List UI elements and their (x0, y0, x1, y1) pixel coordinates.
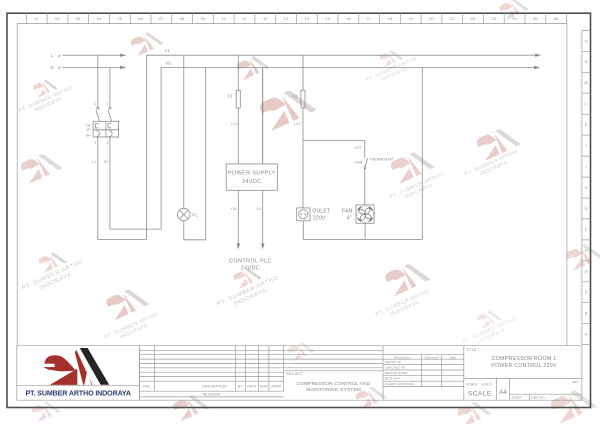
svg-text:18: 18 (388, 17, 393, 21)
svg-text:07: 07 (159, 17, 164, 21)
svg-text:N: N (51, 65, 55, 70)
svg-text:M: M (585, 81, 588, 85)
svg-text:SHEET: SHEET (511, 395, 522, 399)
svg-text:REVISION: REVISION (203, 392, 221, 396)
svg-text:K: K (585, 123, 588, 127)
svg-text:23: 23 (492, 17, 497, 21)
svg-text:DWG NO :: DWG NO : (531, 395, 546, 399)
svg-text:24VDC: 24VDC (242, 179, 261, 185)
svg-text:CHECKED BY: CHECKED BY (385, 366, 407, 370)
svg-text:PL: PL (192, 213, 198, 218)
svg-text:220V: 220V (313, 215, 326, 221)
svg-text:U.N.O.: U.N.O. (482, 383, 493, 387)
svg-text:L1: L1 (165, 48, 171, 53)
svg-text:C: C (585, 291, 588, 295)
svg-text:3: 3 (106, 102, 108, 106)
svg-text:E: E (585, 249, 588, 253)
svg-text:L: L (51, 53, 54, 58)
svg-text:25: 25 (533, 17, 538, 21)
svg-text:20: 20 (429, 17, 434, 21)
svg-text:H: H (585, 186, 588, 190)
svg-text:1P: 1P (86, 128, 91, 132)
svg-text:ø: ø (58, 53, 61, 58)
svg-text:11: 11 (242, 17, 246, 21)
svg-text:MONITORING SYSTEM: MONITORING SYSTEM (306, 387, 361, 393)
svg-text:COMPRESSOR ROOM 1: COMPRESSOR ROOM 1 (492, 356, 557, 362)
svg-text:L: L (585, 102, 587, 106)
svg-text:F: F (585, 228, 588, 232)
svg-text:05: 05 (117, 17, 122, 21)
svg-text:F2: F2 (292, 94, 298, 99)
svg-text:06: 06 (138, 17, 143, 21)
svg-text:15: 15 (325, 17, 330, 21)
svg-text:ø: ø (58, 65, 61, 70)
svg-text:03: 03 (76, 17, 81, 21)
svg-text:26: 26 (554, 17, 559, 21)
svg-text:02: 02 (55, 17, 60, 21)
svg-text:6A: 6A (86, 133, 91, 137)
svg-text:4: 4 (107, 141, 109, 145)
svg-text:SCALE: SCALE (468, 391, 492, 398)
svg-text:DESCRIPTION: DESCRIPTION (202, 385, 227, 389)
svg-text:COMPRESSOR CONTROL AND: COMPRESSOR CONTROL AND (297, 381, 371, 387)
svg-text:N: N (585, 60, 588, 64)
svg-text:Description: Description (394, 355, 411, 359)
svg-text:A4: A4 (499, 389, 507, 396)
svg-text:DRAWN BY: DRAWN BY (385, 360, 403, 364)
svg-text:LC3: LC3 (355, 146, 362, 150)
svg-text:THERMOSTAT: THERMOSTAT (370, 158, 394, 162)
svg-text:21: 21 (450, 17, 455, 21)
svg-text:22: 22 (471, 17, 476, 21)
svg-text:DATE: DATE (247, 385, 257, 389)
svg-text:09: 09 (201, 17, 206, 21)
svg-text:14: 14 (304, 17, 309, 21)
svg-text:04: 04 (97, 17, 102, 21)
svg-text:+24: +24 (230, 207, 236, 211)
svg-text:CONTROL PLC: CONTROL PLC (229, 258, 272, 264)
svg-text:13: 13 (284, 17, 289, 21)
svg-text:POWER CONTROL 220V: POWER CONTROL 220V (491, 363, 557, 369)
svg-text:LC1: LC1 (231, 122, 238, 126)
svg-text:24VDC: 24VDC (241, 266, 260, 272)
svg-text:F1: F1 (228, 94, 234, 99)
svg-text:TITLE: TITLE (466, 348, 477, 352)
svg-text:2: 2 (95, 141, 97, 145)
svg-text:D: D (585, 270, 588, 274)
svg-text:4": 4" (347, 216, 352, 222)
svg-text:Date: Date (449, 355, 456, 359)
svg-text:PT. SUMBER ARTHO INDORAYA: PT. SUMBER ARTHO INDORAYA (26, 390, 131, 398)
svg-text:REV: REV (572, 380, 579, 384)
svg-text:SCALE:: SCALE: (466, 383, 479, 387)
svg-text:16: 16 (346, 17, 351, 21)
svg-text:APRD: APRD (271, 385, 281, 389)
svg-text:01: 01 (34, 17, 39, 21)
svg-text:08: 08 (180, 17, 185, 21)
svg-text:DESIGN ENGR: DESIGN ENGR (385, 371, 409, 375)
svg-text:24: 24 (512, 17, 517, 21)
svg-text:FAN: FAN (342, 208, 353, 214)
svg-text:BY: BY (238, 385, 243, 389)
svg-text:1: 1 (94, 102, 96, 106)
svg-text:G: G (585, 207, 588, 211)
svg-text:LC2: LC2 (294, 122, 301, 126)
svg-text:J: J (585, 144, 587, 148)
svg-text:B: B (585, 312, 588, 316)
svg-text:OULET: OULET (312, 209, 331, 215)
svg-text:12: 12 (263, 17, 268, 21)
svg-text:-24: -24 (256, 207, 261, 211)
svg-text:PROJECT: PROJECT (287, 372, 304, 376)
svg-text:REV: REV (143, 385, 151, 389)
svg-text:L1: L1 (92, 160, 96, 164)
svg-text:O: O (585, 39, 588, 43)
svg-text:N1: N1 (166, 61, 172, 66)
svg-text:I: I (586, 165, 587, 169)
svg-text:CB: CB (86, 124, 92, 128)
svg-text:Signature: Signature (425, 355, 439, 359)
svg-text:N1: N1 (104, 160, 109, 164)
svg-text:CLIENT APPROVAL: CLIENT APPROVAL (385, 382, 415, 386)
svg-text:10: 10 (221, 17, 226, 21)
svg-text:POWER SUPPLY: POWER SUPPLY (228, 170, 276, 176)
svg-text:17: 17 (367, 17, 372, 21)
svg-text:19: 19 (408, 17, 413, 21)
svg-text:FAN: FAN (355, 161, 362, 165)
svg-text:MGR APP: MGR APP (385, 376, 400, 380)
svg-text:CHK: CHK (260, 385, 268, 389)
svg-text:A: A (585, 333, 588, 337)
